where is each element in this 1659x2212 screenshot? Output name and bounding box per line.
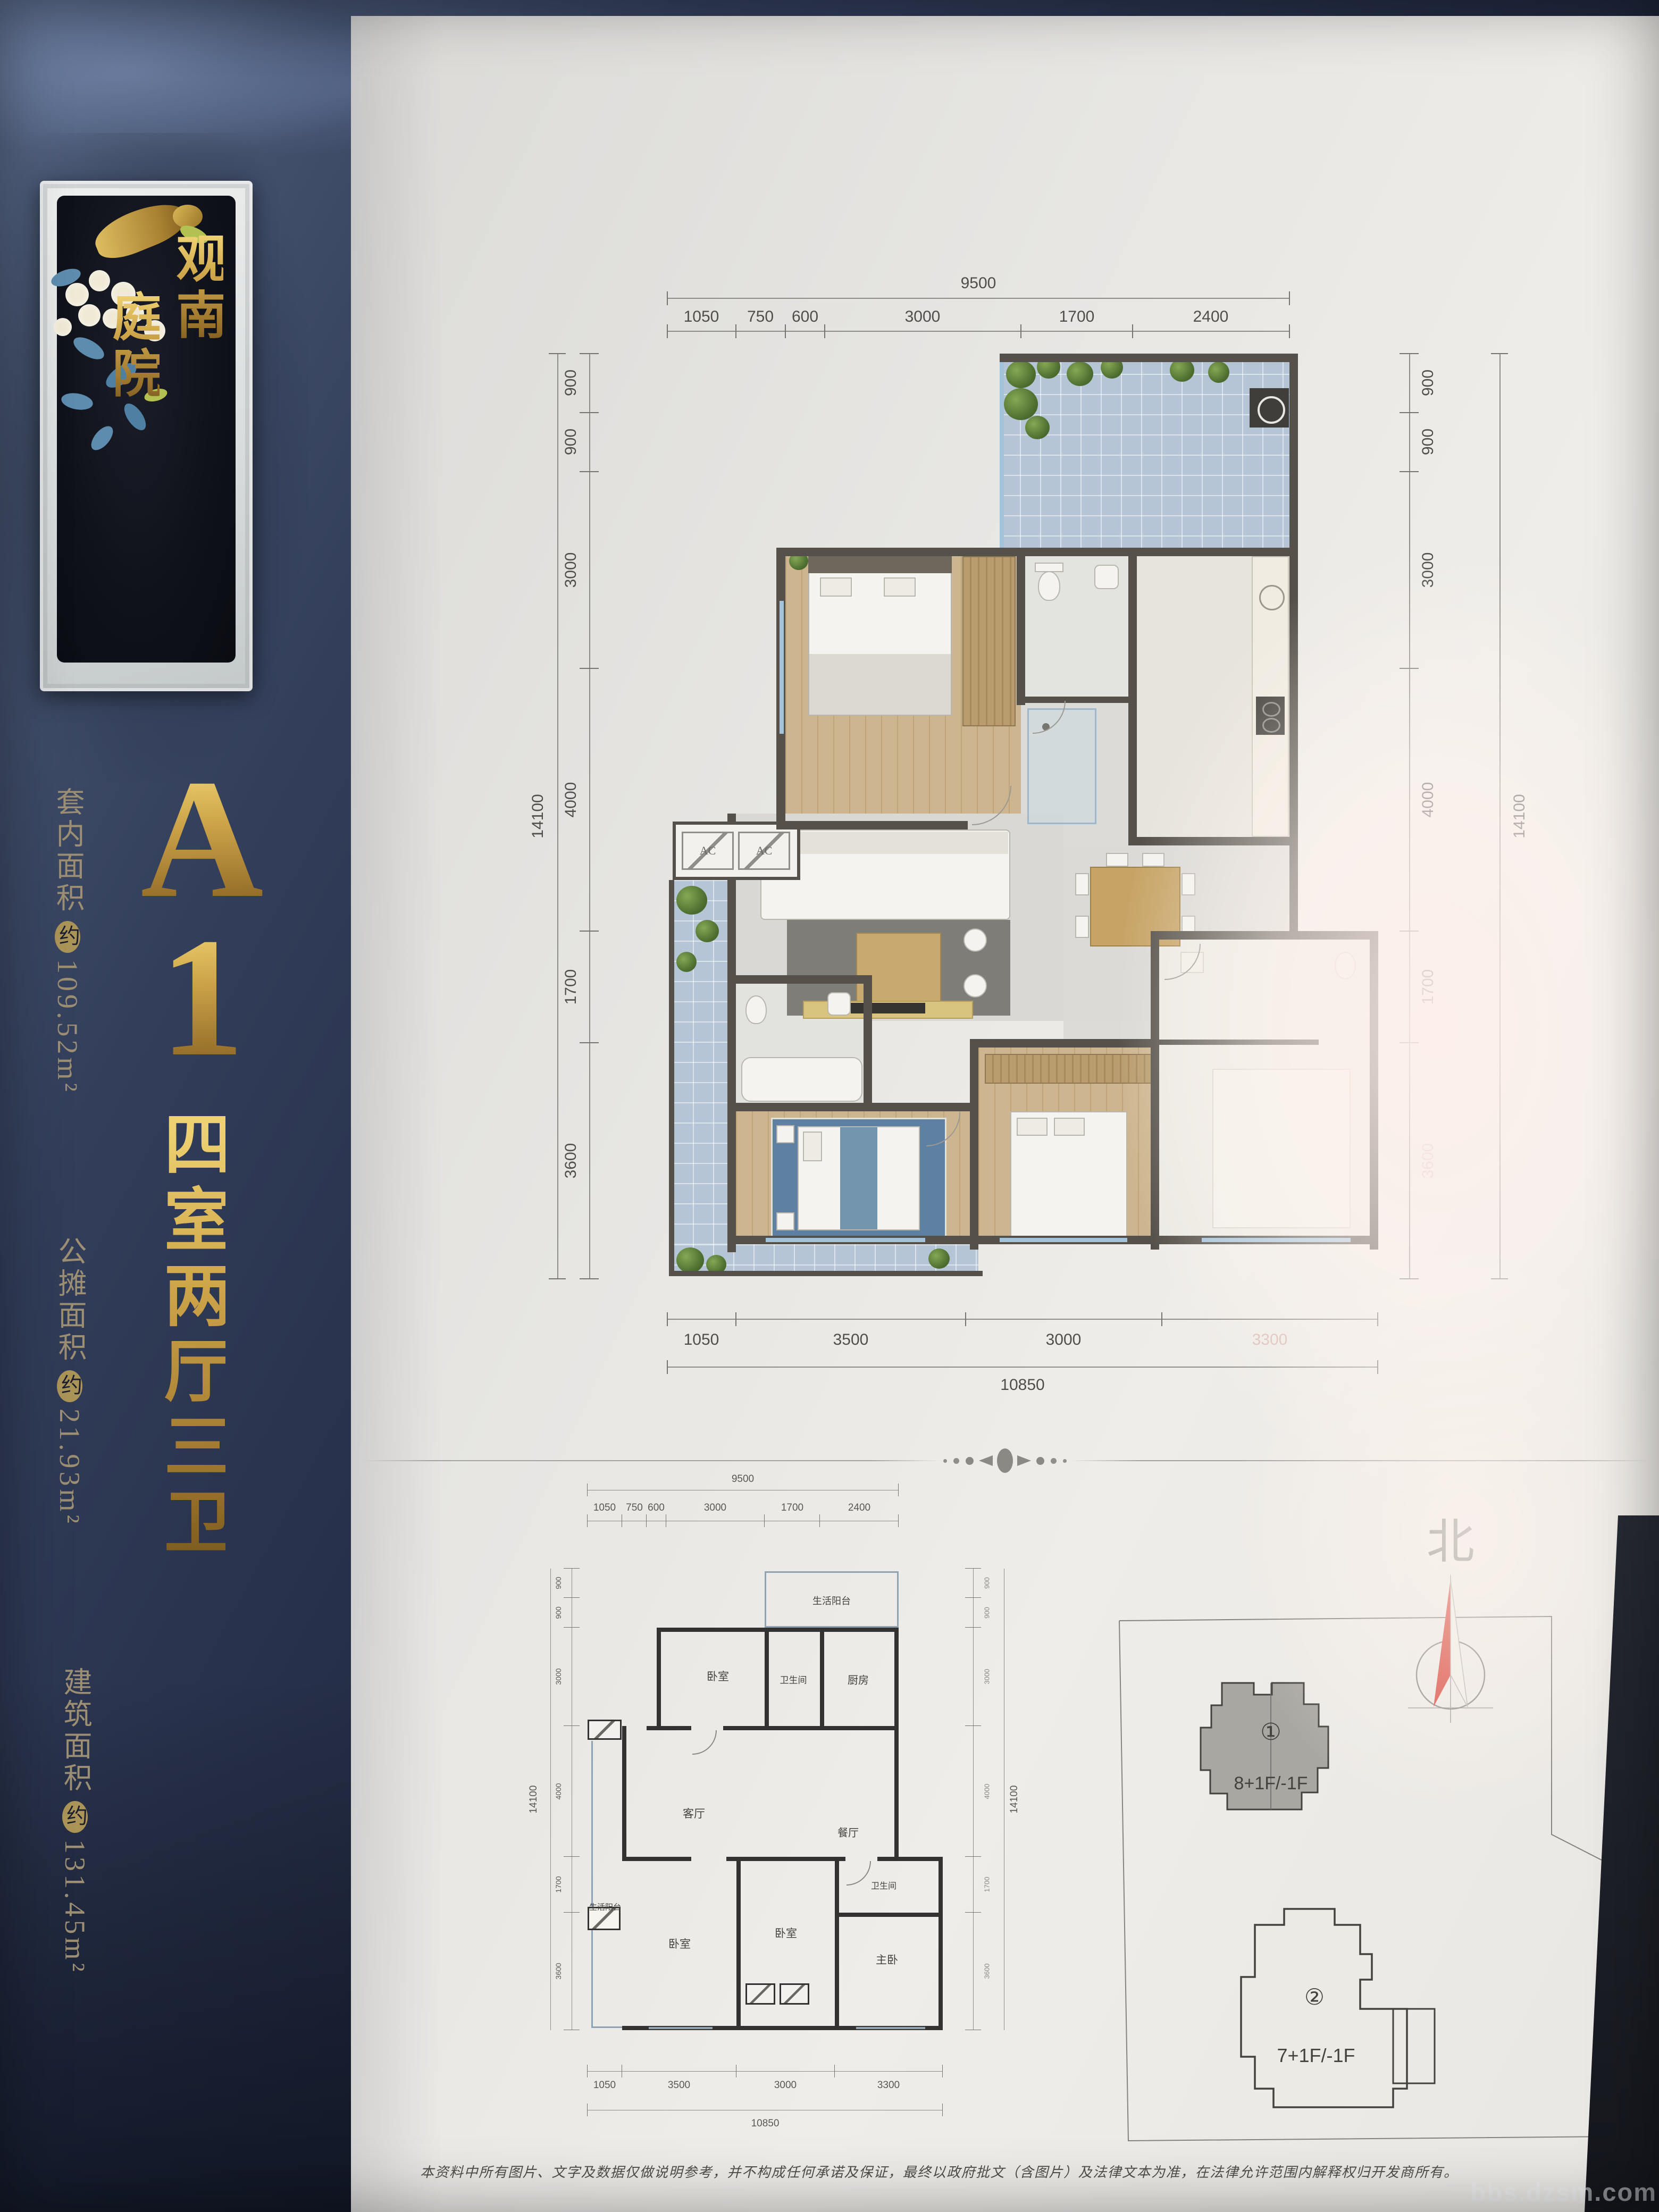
dim-label: 3000 [983, 1669, 991, 1685]
dim-tick [666, 1514, 666, 1527]
kitchen-sink [1259, 585, 1285, 610]
north-arrow-icon [1434, 1579, 1451, 1707]
window [766, 1238, 925, 1242]
plant [1004, 388, 1038, 420]
dim-tick [764, 1514, 765, 1527]
dim-line [973, 1569, 974, 2030]
dim-label: 2400 [848, 1502, 870, 1514]
room-label-bedroom2: 卧室 [668, 1935, 691, 1951]
dim-tick [1400, 1042, 1419, 1043]
sink [1094, 565, 1119, 589]
wall-segment [1000, 354, 1298, 362]
dim-label: 900 [562, 370, 580, 396]
pillow [884, 577, 916, 597]
disclaimer-text: 本资料中所有图片、文字及数据仅做说明参考，并不构成任何承诺及保证，最终以政府批文… [420, 2161, 1643, 2181]
window [1000, 362, 1004, 548]
ac-label: AC [756, 844, 773, 858]
dim-label: 3000 [905, 308, 941, 326]
chair [1075, 873, 1089, 895]
divider-dot [1063, 1459, 1067, 1463]
dim-label: 1050 [684, 1331, 719, 1349]
dim-label: 900 [562, 429, 580, 455]
ac-unit [588, 1720, 622, 1740]
room-label-master: 主卧 [876, 1951, 898, 1967]
bed-blanket [840, 1127, 877, 1229]
brand-plaque: 观南 庭院 [40, 181, 253, 691]
divider-dot [1036, 1457, 1044, 1465]
dim-tick [564, 2030, 580, 2030]
dim-line [667, 1319, 1378, 1320]
door-swing [847, 1861, 871, 1886]
dim-tick [1400, 931, 1419, 932]
approx-badge: 约 [55, 921, 80, 953]
room-label-dining: 餐厅 [837, 1824, 859, 1840]
dim-tick [736, 2065, 736, 2077]
dim-tick [667, 324, 668, 338]
dim-tick [898, 1484, 899, 1496]
site-plan: ① 8+1F/-1F ② 7+1F/-1F 北 [1095, 1499, 1659, 2185]
dim-label: 1700 [1059, 308, 1095, 326]
wall-segment [970, 1039, 978, 1250]
wall-segment [723, 1726, 899, 1730]
chair [1075, 916, 1089, 938]
dim-tick [564, 1856, 580, 1857]
dim-label: 3600 [554, 1963, 563, 1979]
divider-arrow-icon [979, 1455, 993, 1466]
dim-line [557, 354, 558, 1279]
door-swing [692, 1730, 717, 1755]
dim-label: 3000 [562, 552, 580, 588]
wall-segment [776, 821, 968, 829]
dim-tick [735, 324, 736, 338]
dim-line [572, 1569, 572, 2030]
plant [676, 952, 697, 972]
dim-line [588, 2071, 943, 2072]
dim-tick [549, 353, 566, 354]
dim-tick [564, 1725, 580, 1726]
dim-label-total-bottom: 10850 [751, 2118, 780, 2130]
dim-label: 3000 [554, 1668, 563, 1685]
dim-tick [667, 291, 668, 305]
dim-tick [735, 1312, 736, 1326]
dim-label: 3000 [704, 1502, 726, 1514]
toilet [1038, 571, 1060, 601]
area-inner-value: 109.52m² [52, 959, 83, 1095]
window [1202, 1238, 1351, 1242]
dim-line [667, 1367, 1378, 1368]
area-gross: 建筑面积约131.45m² [61, 1667, 89, 2124]
stool [963, 928, 987, 952]
wall-segment [657, 1628, 899, 1632]
dim-tick [1020, 324, 1021, 338]
terrace-floor [1000, 354, 1298, 548]
wall-segment [820, 1628, 824, 1726]
area-inner: 套内面积约109.52m² [53, 787, 82, 1244]
washing-machine-drum [1258, 396, 1285, 424]
dim-label: 3500 [668, 2080, 690, 2091]
wall-segment [736, 1103, 978, 1111]
wall-segment [622, 1857, 691, 1861]
dim-label: 1700 [554, 1876, 563, 1892]
dim-tick [965, 1312, 966, 1326]
room-label-balcony: 生活阳台 [589, 1901, 621, 1913]
dim-tick [965, 1912, 981, 1913]
dim-label: 1700 [1419, 969, 1437, 1005]
dim-label: 1050 [593, 2080, 616, 2091]
divider-dot [953, 1458, 959, 1464]
dim-label: 1050 [684, 308, 719, 326]
dim-tick [965, 1627, 981, 1628]
dim-label: 4000 [1419, 782, 1437, 818]
dim-label: 900 [983, 1607, 991, 1619]
dim-tick [564, 1912, 580, 1913]
dim-label: 3000 [1046, 1331, 1082, 1349]
dim-tick [965, 1568, 981, 1569]
dim-tick [1400, 668, 1419, 669]
plant [676, 886, 707, 915]
dim-tick [587, 2104, 588, 2116]
dim-tick [646, 1514, 647, 1527]
wall-segment [727, 880, 736, 1252]
dim-label: 3600 [1419, 1143, 1437, 1179]
room-label-kitchen: 厨房 [848, 1672, 869, 1687]
divider-center-icon [997, 1448, 1013, 1473]
plant [1067, 362, 1093, 386]
wall-segment [765, 1628, 769, 1726]
area-shared-value: 21.93m² [54, 1409, 86, 1527]
dim-tick [622, 1514, 622, 1527]
sink [827, 992, 851, 1016]
wall-segment [1159, 1040, 1319, 1045]
north-arrow-icon [1451, 1579, 1468, 1707]
flower [78, 304, 100, 326]
north-label: 北 [1427, 1516, 1474, 1569]
unit-letter: A [133, 760, 271, 919]
dim-line [1499, 354, 1501, 1279]
dim-tick [1400, 471, 1419, 472]
wall-segment [939, 1857, 943, 2030]
dim-line [1409, 354, 1410, 1279]
dim-line [667, 331, 1289, 332]
dim-tick [667, 1312, 668, 1326]
watermark: bbs.dzsm.com [1471, 2177, 1657, 2207]
dim-tick [564, 1597, 580, 1598]
dim-line [550, 1569, 551, 2030]
dim-label: 600 [792, 308, 818, 326]
dim-label-total-bottom: 10850 [1000, 1376, 1044, 1394]
chair [1182, 873, 1195, 895]
dim-tick [587, 2065, 588, 2077]
wall-segment [736, 1857, 741, 2030]
dim-line [588, 1521, 899, 1521]
dim-tick [564, 1568, 580, 1569]
window [780, 601, 784, 734]
wall-segment [864, 975, 872, 1111]
ac-label: AC [700, 844, 716, 858]
stove-burner [1262, 702, 1280, 717]
bed-headboard [808, 556, 952, 573]
wall-segment [877, 1857, 943, 1861]
dim-tick [549, 1278, 566, 1279]
wall-segment [657, 1628, 661, 1726]
dim-tick [667, 1360, 668, 1374]
plant [696, 920, 719, 942]
window [649, 2027, 713, 2029]
brochure-photo: 9500 1050 750 600 3000 1700 2400 14100 9… [0, 0, 1659, 2212]
area-gross-label: 建筑面积 [59, 1667, 91, 1795]
dim-label: 4000 [562, 782, 580, 818]
brochure-page: 9500 1050 750 600 3000 1700 2400 14100 9… [351, 16, 1659, 2212]
site-building-1-tag: ① [1260, 1719, 1281, 1745]
site-building-1-floors: 8+1F/-1F [1234, 1773, 1308, 1794]
pillow [1017, 1118, 1048, 1136]
dim-tick [564, 1627, 580, 1628]
dim-tick [1377, 1360, 1378, 1374]
dim-tick [898, 1514, 899, 1527]
site-building-2-tag: ② [1304, 1984, 1325, 2009]
flower [54, 318, 72, 336]
dim-line [589, 354, 590, 1279]
site-building-2-floors: 7+1F/-1F [1277, 2045, 1355, 2066]
stool [963, 974, 987, 998]
dim-label: 3600 [983, 1964, 991, 1979]
dim-tick [1400, 1278, 1419, 1279]
dim-label: 750 [626, 1502, 643, 1514]
flower [89, 270, 110, 291]
divider-dot [966, 1457, 974, 1465]
ac-unit [745, 1983, 775, 2005]
dim-label: 3500 [833, 1331, 869, 1349]
approx-badge: 约 [62, 1801, 88, 1833]
dim-tick [580, 471, 599, 472]
wall-segment [669, 880, 674, 1276]
dim-label: 900 [554, 1606, 563, 1619]
wall-segment [736, 975, 872, 984]
wall-segment [726, 1857, 845, 1861]
toilet [745, 995, 767, 1024]
room-label-bath2: 卫生间 [871, 1879, 896, 1891]
dim-label: 1700 [562, 969, 580, 1005]
plant [1006, 361, 1036, 388]
unit-layout: 四室两厅三卫 [157, 1109, 225, 1562]
dim-label: 4000 [554, 1783, 563, 1799]
dim-label: 1700 [983, 1877, 991, 1892]
wall-segment [1017, 548, 1025, 705]
dim-label: 1700 [781, 1502, 803, 1514]
wall-segment [835, 1857, 839, 2030]
dim-tick [580, 931, 599, 932]
dim-label: 2400 [1193, 308, 1229, 326]
dim-tick [622, 2065, 622, 2077]
divider-arrow-icon [1017, 1455, 1031, 1466]
plant [1208, 362, 1229, 383]
wardrobe [962, 556, 1016, 726]
wall-segment [1370, 940, 1378, 1250]
wall-segment [894, 1628, 899, 1857]
dim-tick [587, 1514, 588, 1527]
chair [1142, 853, 1164, 867]
dim-label-total-top: 9500 [732, 1473, 754, 1485]
divider-line [362, 1460, 940, 1461]
dim-label: 600 [648, 1502, 665, 1514]
dim-tick [1491, 353, 1508, 354]
section-divider [362, 1448, 1648, 1473]
plant [1025, 416, 1050, 439]
unit-number: 1 [133, 919, 271, 1077]
dim-tick [824, 324, 825, 338]
area-shared-label: 公摊面积 [54, 1236, 86, 1364]
dim-tick [942, 2104, 943, 2116]
bathtub [741, 1057, 862, 1102]
dim-label-total-right: 14100 [1511, 794, 1529, 838]
dim-label: 1050 [593, 1502, 616, 1514]
room-label-terrace: 生活阳台 [812, 1594, 851, 1607]
bird-icon [173, 205, 203, 228]
divider-dot [1051, 1458, 1057, 1464]
wall-segment [669, 1271, 983, 1276]
dim-label-total-left: 14100 [529, 794, 547, 838]
dim-tick [580, 1278, 599, 1279]
dim-tick [580, 353, 599, 354]
pillow [803, 1132, 822, 1161]
unit-name: A 1 [133, 760, 271, 1077]
wall-segment [978, 1039, 1159, 1048]
dim-line [588, 1490, 899, 1490]
dim-tick [965, 1856, 981, 1857]
room-label-bedroom: 卧室 [707, 1668, 729, 1684]
bed [1212, 1069, 1351, 1228]
area-shared: 公摊面积约21.93m² [55, 1236, 84, 1672]
dim-label: 750 [747, 308, 774, 326]
closet [985, 1054, 1153, 1084]
divider-line [1070, 1460, 1648, 1461]
dim-label: 900 [554, 1577, 563, 1589]
plaque-title-left: 庭院 [106, 290, 160, 403]
dim-tick [965, 1597, 981, 1598]
wall-segment [1133, 837, 1298, 845]
wall-segment [1289, 556, 1298, 940]
dim-tick [965, 1725, 981, 1726]
dim-label: 900 [983, 1577, 991, 1589]
window [856, 2027, 925, 2029]
dim-label-total-top: 9500 [961, 274, 996, 292]
toilet-tank [1035, 563, 1063, 572]
dim-line [667, 298, 1289, 299]
dim-tick [785, 324, 786, 338]
wall-segment [622, 1726, 626, 1857]
toilet [1335, 952, 1356, 979]
dim-tick [580, 412, 599, 413]
stove-burner [1262, 718, 1280, 733]
approx-badge: 约 [57, 1370, 82, 1402]
dim-tick [942, 2065, 943, 2077]
dim-tick [1400, 412, 1419, 413]
dim-label: 3300 [877, 2080, 900, 2091]
dim-tick [587, 1484, 588, 1496]
plant [928, 1249, 950, 1269]
room-label-bedroom3: 卧室 [775, 1925, 797, 1941]
dim-tick [580, 1042, 599, 1043]
chair [1106, 853, 1128, 867]
plant [676, 1247, 704, 1273]
dim-tick [965, 2030, 981, 2030]
dim-label: 3300 [1252, 1331, 1288, 1349]
dim-tick [1491, 1278, 1508, 1279]
tv [851, 1003, 925, 1013]
wall-segment [727, 814, 736, 822]
fabric-shadow [0, 1675, 372, 2212]
flower [65, 283, 89, 306]
nightstand [776, 1125, 794, 1143]
nightstand [776, 1212, 794, 1230]
dim-label: 900 [1419, 429, 1437, 455]
dim-label: 4000 [983, 1784, 991, 1799]
dim-label-total-left: 14100 [528, 1786, 540, 1814]
pillow [820, 577, 852, 597]
dim-line [588, 2110, 943, 2110]
wall-segment [1159, 931, 1378, 940]
dim-label-total-right: 14100 [1009, 1786, 1020, 1814]
pillow [1054, 1118, 1085, 1136]
dim-tick [1400, 353, 1419, 354]
bed-blanket [809, 654, 951, 715]
dim-tick [1289, 324, 1290, 338]
wall-segment [1289, 354, 1298, 556]
dim-label: 900 [1419, 370, 1437, 396]
balcony-outline [591, 1741, 622, 2028]
plaque-title-right: 观南 [170, 232, 223, 345]
wall-segment [647, 1726, 691, 1730]
dim-tick [1289, 291, 1290, 305]
dim-tick [834, 2065, 835, 2077]
dim-tick [580, 668, 599, 669]
dim-tick [819, 1514, 820, 1527]
dim-tick [1161, 1312, 1162, 1326]
wall-segment [1151, 931, 1159, 1250]
dim-label: 3600 [562, 1143, 580, 1179]
ac-unit [780, 1983, 809, 2005]
wall-segment [776, 548, 1298, 556]
dim-tick [1132, 324, 1133, 338]
area-gross-value: 131.45m² [59, 1839, 91, 1975]
dim-tick [1377, 1312, 1378, 1326]
wall-segment [835, 1913, 943, 1917]
area-inner-label: 套内面积 [52, 787, 83, 915]
room-label-living: 客厅 [683, 1805, 705, 1821]
room-label-bath: 卫生间 [780, 1673, 807, 1686]
dim-line [1004, 1569, 1004, 2030]
window [1000, 1238, 1127, 1242]
dim-label: 3000 [1419, 552, 1437, 588]
divider-dot [943, 1459, 947, 1463]
dim-label: 3000 [774, 2080, 797, 2091]
